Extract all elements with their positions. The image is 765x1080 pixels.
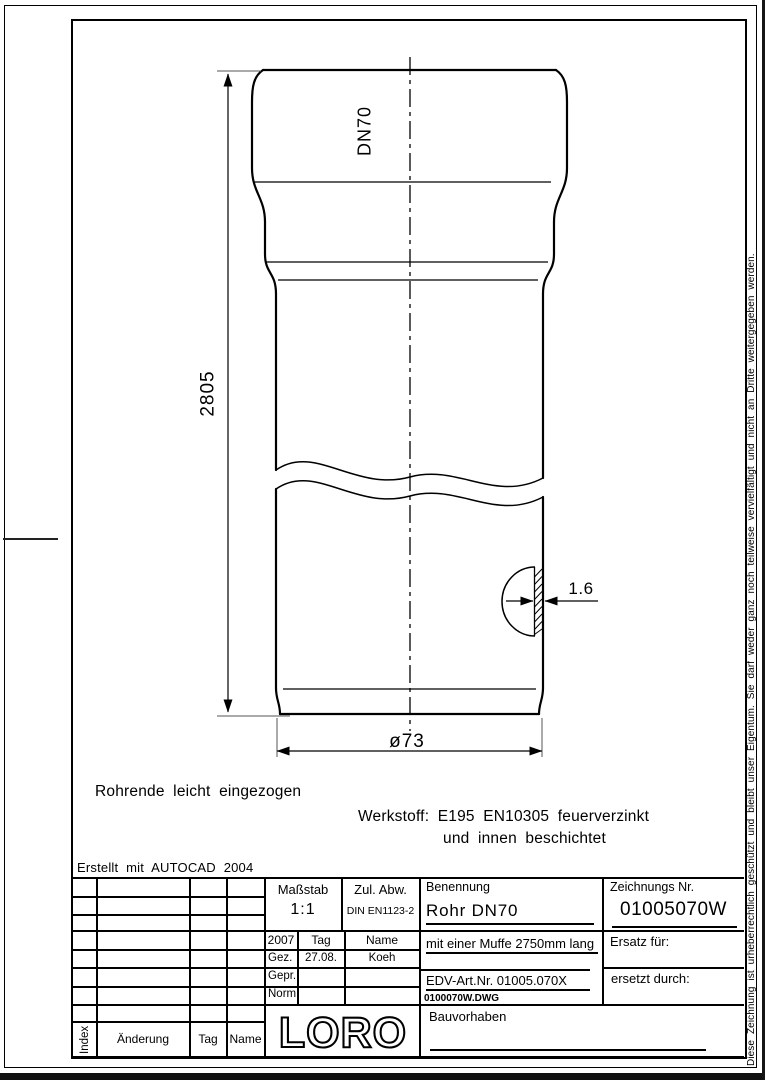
- pipe-right-wall-upper: [543, 70, 567, 478]
- signature-row-label: Gez.: [268, 952, 292, 964]
- drawing-number-label: Zeichnungs Nr.: [610, 880, 694, 894]
- pipe-left-wall-upper: [252, 70, 276, 470]
- grid-line: [73, 896, 265, 898]
- grid-line: [189, 877, 191, 1058]
- hatching: [535, 569, 543, 635]
- designation-subtitle: mit einer Muffe 2750mm lang: [426, 936, 594, 951]
- dimension-wall: 1.6: [506, 579, 598, 601]
- scale-value: 1:1: [265, 901, 341, 919]
- length-value: 2805: [198, 370, 219, 416]
- wall-thickness-value: 1.6: [568, 579, 593, 598]
- signature-name-header: Name: [344, 933, 420, 947]
- designation-title: Rohr DN70: [426, 901, 518, 921]
- scan-edge-bottom: [0, 1073, 765, 1080]
- pipe-drawing: 1.6 2805 ø73 DN70: [0, 0, 765, 880]
- grid-line: [420, 969, 590, 971]
- note-material-2: und innen beschichtet: [443, 830, 606, 848]
- signature-row-date: 27.08.: [297, 952, 345, 964]
- grid-line: [73, 1004, 744, 1006]
- tolerance-value: DIN EN1123-2: [341, 905, 420, 917]
- field-underline: [426, 952, 598, 954]
- loro-logo: LORO: [272, 1008, 414, 1055]
- grid-line: [603, 967, 744, 969]
- edv-art-nr: EDV-Art.Nr. 01005.070X: [426, 973, 567, 988]
- designation-label: Benennung: [426, 880, 490, 894]
- file-name: 0100070W.DWG: [424, 993, 499, 1004]
- replaced-by-label: ersetzt durch:: [611, 971, 690, 986]
- signature-year: 2007: [264, 933, 298, 947]
- grid-line: [73, 967, 420, 969]
- grid-line: [602, 877, 604, 1006]
- grid-line: [73, 930, 744, 932]
- signature-row-label: Norm.: [268, 988, 299, 1000]
- revision-index-header: Index: [74, 1023, 97, 1056]
- grid-line: [73, 949, 420, 951]
- grid-line: [73, 1056, 744, 1058]
- loro-logo-text: LORO: [279, 1009, 407, 1055]
- drawing-sheet: 1.6 2805 ø73 DN70 Rohrende leicht eingez…: [0, 0, 765, 1080]
- grid-line: [73, 914, 265, 916]
- pipe-internal-edges: [254, 182, 551, 689]
- tolerance-label: Zul. Abw.: [341, 882, 420, 897]
- dn-label: DN70: [355, 106, 375, 156]
- revision-change-header: Änderung: [96, 1032, 190, 1046]
- copyright-notice: Diese Zeichnung ist urheberrechtlich ges…: [746, 253, 757, 1066]
- note-pipe-end: Rohrende leicht eingezogen: [95, 783, 301, 801]
- signature-row-name: Koeh: [344, 952, 420, 964]
- revision-date-header: Tag: [189, 1032, 227, 1046]
- grid-line: [73, 986, 420, 988]
- signature-row-label: Gepr.: [268, 970, 296, 982]
- signature-date-header: Tag: [297, 933, 345, 947]
- pipe-right-wall-lower: [539, 497, 543, 714]
- field-underline: [426, 923, 594, 925]
- field-underline: [612, 926, 737, 928]
- note-material-1: Werkstoff: E195 EN10305 feuerverzinkt: [358, 808, 649, 826]
- drawing-number-value: 01005070W: [603, 899, 744, 921]
- replacement-for-label: Ersatz für:: [610, 934, 669, 949]
- grid-line: [73, 1021, 265, 1023]
- pipe-left-wall-lower: [276, 489, 280, 714]
- diameter-value: ø73: [389, 731, 425, 752]
- field-underline: [426, 989, 590, 991]
- note-created-with: Erstellt mit AUTOCAD 2004: [77, 860, 253, 875]
- revision-name-header: Name: [226, 1032, 265, 1046]
- scale-label: Maßstab: [265, 882, 341, 897]
- project-label: Bauvorhaben: [429, 1009, 506, 1024]
- field-underline: [430, 1049, 706, 1051]
- grid-line: [226, 877, 228, 1058]
